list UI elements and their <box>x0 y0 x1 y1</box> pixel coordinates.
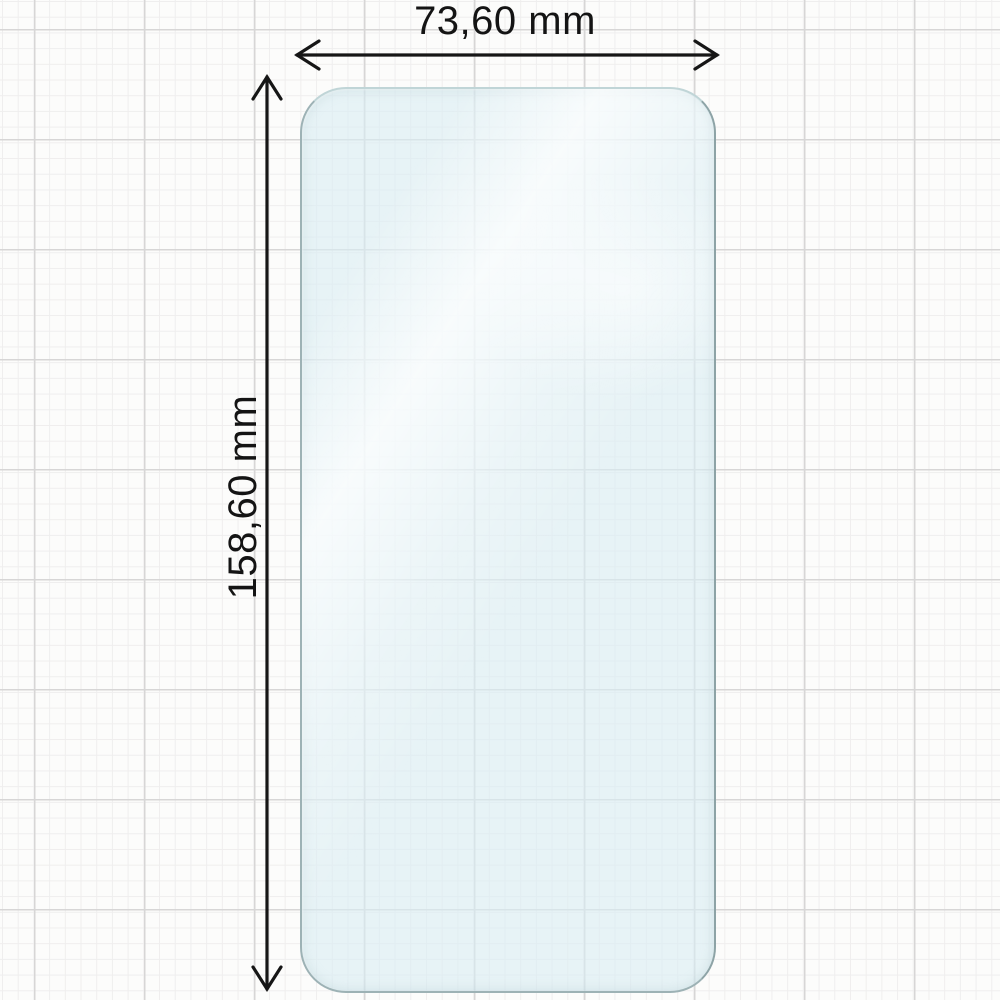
height-dimension-label: 158,60 mm <box>219 347 267 647</box>
arrowhead-left-icon <box>297 41 319 69</box>
graph-paper-background: 73,60 mm 158,60 mm <box>0 0 1000 1000</box>
glass-reflection-highlight <box>302 89 714 991</box>
width-dimension-label: 73,60 mm <box>290 0 720 45</box>
width-dimension-arrow <box>297 41 717 69</box>
arrowhead-down-icon <box>253 967 281 989</box>
arrowhead-up-icon <box>253 77 281 99</box>
arrowhead-right-icon <box>695 41 717 69</box>
screen-protector <box>300 87 716 993</box>
